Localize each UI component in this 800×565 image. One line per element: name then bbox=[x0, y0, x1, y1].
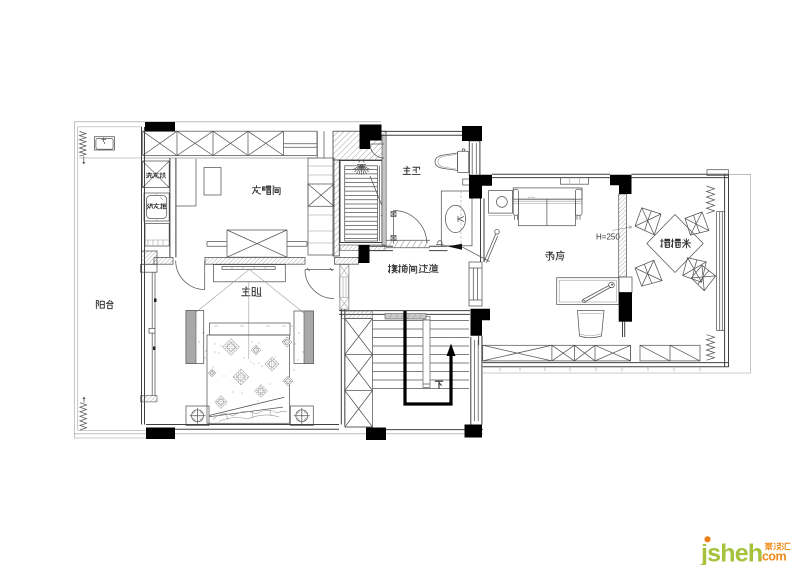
svg-text:.com: .com bbox=[759, 550, 787, 564]
svg-text:H=250: H=250 bbox=[596, 232, 620, 241]
